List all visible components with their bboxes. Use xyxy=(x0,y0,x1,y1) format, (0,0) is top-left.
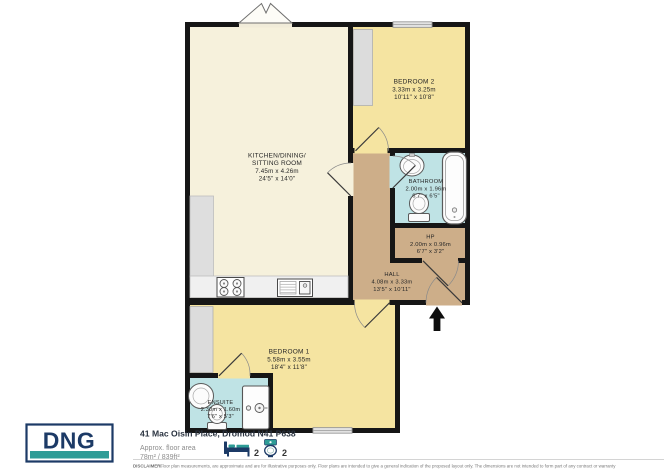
opening-bedroom2-door xyxy=(355,148,388,154)
opening-bedroom1-door xyxy=(355,300,390,306)
window-bedroom2 xyxy=(393,22,432,28)
floorplan-canvas: KITCHEN/DINING/ SITTING ROOM 7.45m x 4.2… xyxy=(0,0,668,472)
floor-area-value: 78m² / 839ft² xyxy=(140,454,180,461)
label-bedroom1-imperial: 18'4" x 11'8" xyxy=(271,364,307,371)
label-bedroom1-name: BEDROOM 1 xyxy=(269,349,310,356)
label-hall-imperial: 13'5" x 10'11" xyxy=(373,287,410,293)
disclaimer-text: Floor plan measurements, are approximate… xyxy=(160,464,616,469)
opening-hp-door xyxy=(422,258,458,264)
label-hall-metric: 4.08m x 3.33m xyxy=(372,280,413,286)
stove-icon xyxy=(217,278,244,298)
bed-count: 2 xyxy=(254,448,259,458)
patio-door-icon xyxy=(239,4,292,24)
wardrobe-bedroom1 xyxy=(190,307,213,373)
label-kitchen-name: KITCHEN/DINING/ xyxy=(248,153,306,160)
label-kitchen-metric: 7.45m x 4.26m xyxy=(255,168,299,175)
label-bathroom-name: BATHROOM xyxy=(409,179,444,185)
label-bedroom2-imperial: 10'11" x 10'8" xyxy=(394,94,434,101)
kitchen-sink-icon xyxy=(278,279,313,297)
shower-icon xyxy=(243,386,270,429)
label-ensuite-metric: 2.30m x 1.60m xyxy=(201,407,241,413)
opening-kitchen-door xyxy=(348,163,354,196)
bath-count: 2 xyxy=(282,448,287,458)
label-bedroom1-metric: 5.58m x 3.55m xyxy=(267,357,311,364)
floor-area-label: Approx. floor area xyxy=(140,445,196,452)
label-ensuite-name: ENSUITE xyxy=(208,400,234,406)
label-bedroom2-name: BEDROOM 2 xyxy=(394,79,435,86)
wardrobe-bedroom2 xyxy=(354,30,373,106)
bed-icon xyxy=(224,442,250,457)
disclaimer-label: DISCLAIMER: xyxy=(133,464,162,469)
opening-entrance-door xyxy=(426,300,462,306)
kitchen-counter-left xyxy=(190,196,214,277)
opening-ensuite-door xyxy=(218,373,250,379)
label-ensuite-imperial: 7'6" x 5'3" xyxy=(207,414,234,420)
floorplan-page: KITCHEN/DINING/ SITTING ROOM 7.45m x 4.2… xyxy=(0,0,668,472)
kitchen-counter-bottom xyxy=(190,276,348,298)
address: 41 Mac Oisin Place, Dromod N41 P638 xyxy=(140,429,296,439)
label-hp-imperial: 6'7" x 3'2" xyxy=(417,249,445,255)
entrance-arrow-icon xyxy=(429,307,445,332)
label-hp-metric: 2.00m x 0.96m xyxy=(410,242,451,248)
label-bedroom2-metric: 3.33m x 3.25m xyxy=(392,87,436,94)
dng-logo-text: DNG xyxy=(43,428,96,454)
opening-bathroom-door xyxy=(390,156,396,188)
dng-logo-bar xyxy=(30,451,109,459)
window-bedroom1 xyxy=(313,428,352,434)
label-kitchen-imperial: 24'5" x 14'0" xyxy=(259,176,296,183)
label-kitchen-name2: SITTING ROOM xyxy=(252,160,302,167)
label-bathroom-metric: 2.00m x 1.96m xyxy=(406,187,447,193)
label-hp-name: HP xyxy=(426,235,434,241)
label-bathroom-imperial: 6'7" x 6'5" xyxy=(412,194,440,200)
dng-logo: DNG xyxy=(27,425,113,462)
label-hall-name: HALL xyxy=(384,272,400,278)
bath-icon xyxy=(265,440,277,458)
